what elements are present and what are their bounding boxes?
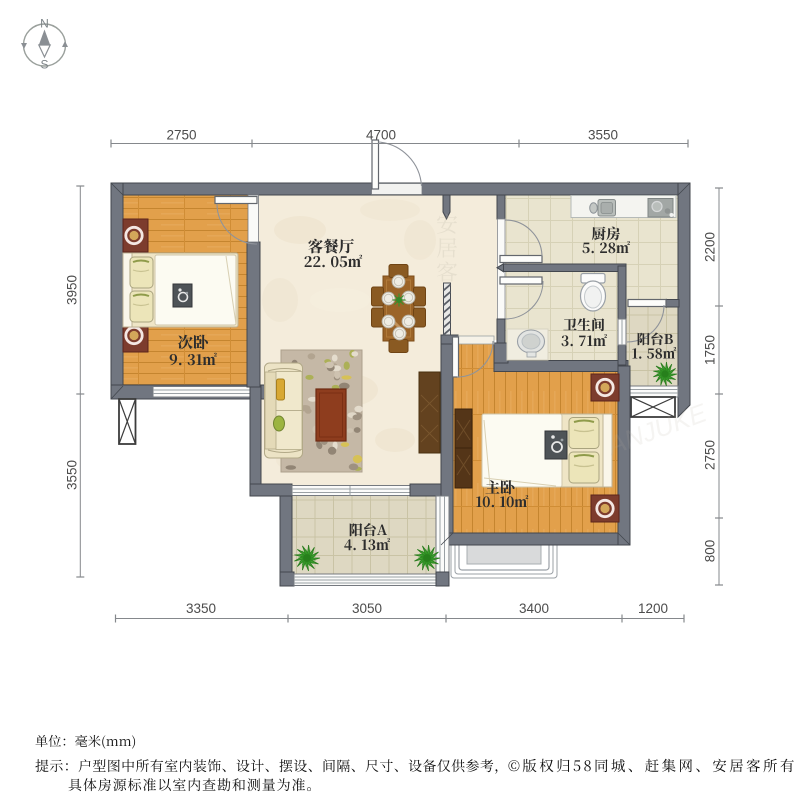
svg-text:3050: 3050	[352, 601, 382, 616]
svg-text:2200: 2200	[703, 232, 718, 262]
svg-text:3950: 3950	[65, 275, 80, 305]
svg-text:3400: 3400	[519, 601, 549, 616]
svg-text:1200: 1200	[638, 601, 668, 616]
svg-text:S: S	[40, 58, 48, 72]
svg-text:4700: 4700	[366, 128, 396, 143]
svg-text:3550: 3550	[588, 128, 618, 143]
svg-text:N: N	[40, 17, 49, 31]
svg-text:3350: 3350	[186, 601, 216, 616]
svg-text:800: 800	[703, 540, 718, 563]
svg-text:3550: 3550	[65, 460, 80, 490]
svg-text:2750: 2750	[166, 128, 196, 143]
svg-text:2750: 2750	[703, 440, 718, 470]
svg-text:1750: 1750	[703, 335, 718, 365]
